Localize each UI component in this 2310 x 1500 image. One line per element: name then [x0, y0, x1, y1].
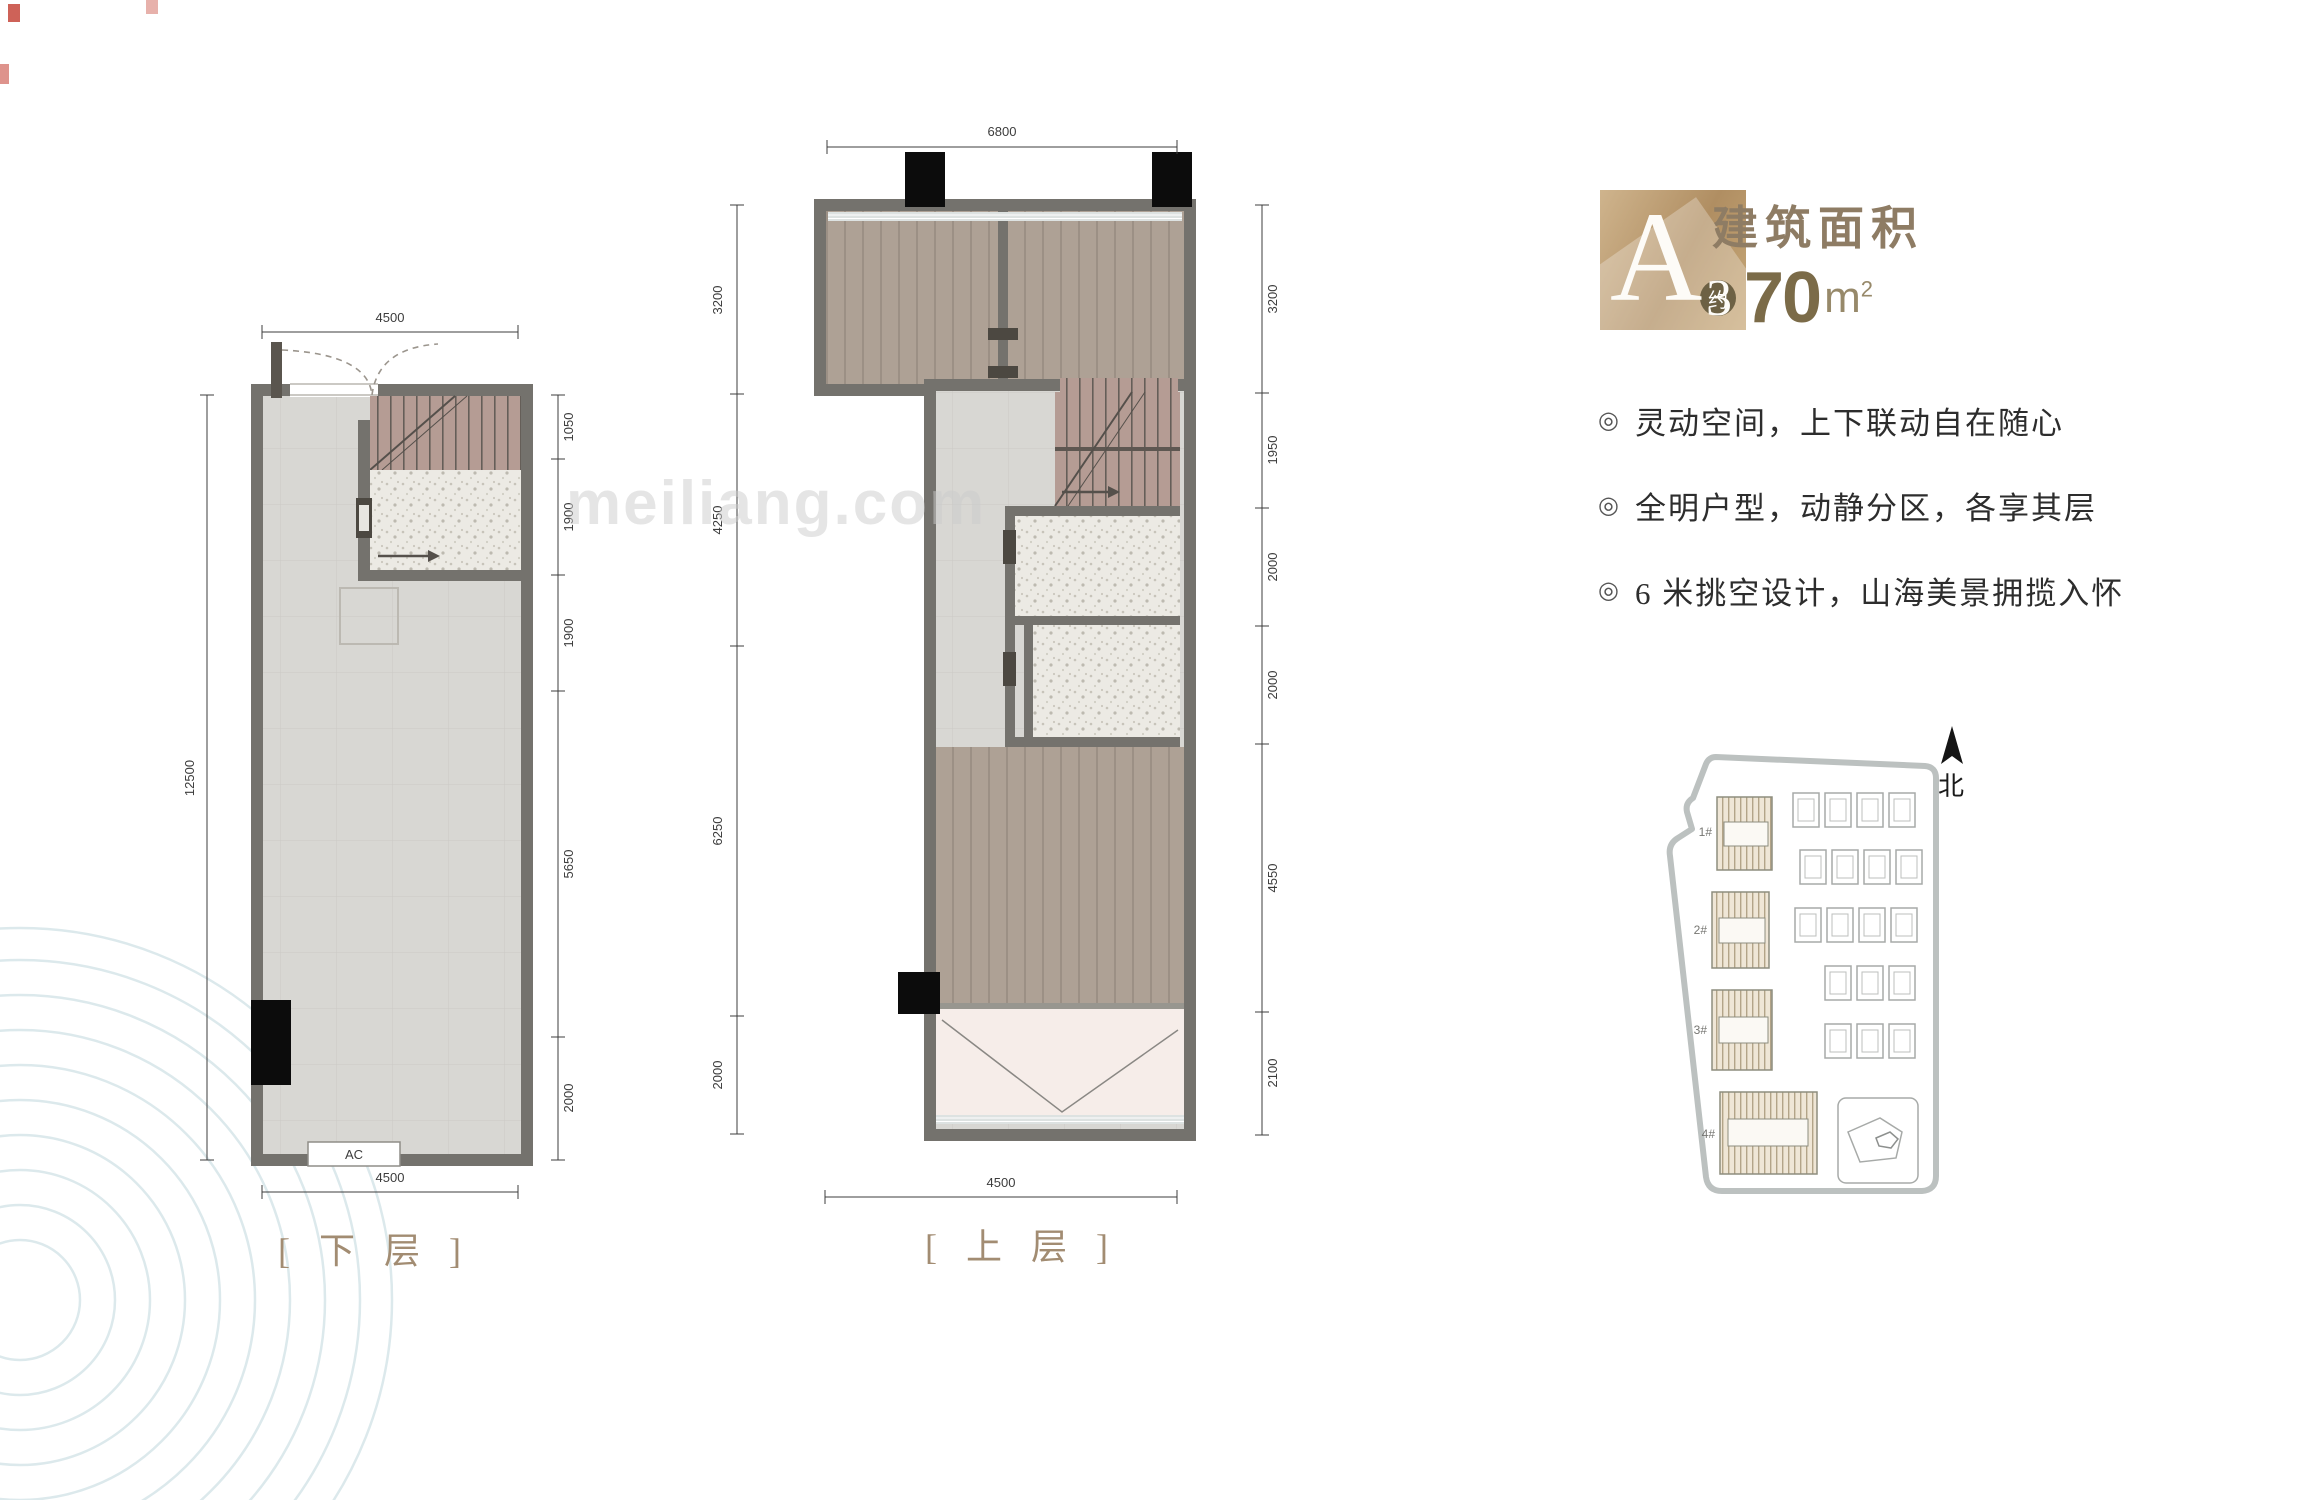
upper-plan-caption: [ 上 层 ] — [925, 1218, 1118, 1270]
svg-text:4550: 4550 — [1265, 864, 1280, 893]
bedroom-floor — [936, 747, 1184, 1003]
window-glazing — [828, 212, 1182, 221]
svg-text:3200: 3200 — [1265, 285, 1280, 314]
svg-text:1900: 1900 — [561, 619, 576, 648]
bullet-icon: ◎ — [1598, 576, 1621, 605]
column — [1152, 152, 1192, 207]
svg-text:5650: 5650 — [561, 850, 576, 879]
lower-floor-plan-drawing: AC — [251, 342, 527, 1166]
ac-label: AC — [345, 1147, 363, 1162]
north-label: 北 — [1938, 772, 1964, 801]
svg-text:6250: 6250 — [710, 817, 725, 846]
bullet-icon: ◎ — [1598, 491, 1621, 520]
column — [898, 972, 940, 1014]
lower-staircase — [370, 396, 521, 470]
area-unit: m2 — [1824, 273, 1873, 323]
svg-text:2000: 2000 — [1265, 553, 1280, 582]
area-value: 70 — [1744, 262, 1820, 334]
unit-number: 3 — [1706, 269, 1732, 328]
svg-text:4500: 4500 — [376, 310, 405, 325]
svg-text:1#: 1# — [1699, 825, 1713, 839]
svg-text:3200: 3200 — [710, 286, 725, 315]
terrace — [936, 1009, 1184, 1124]
svg-text:2100: 2100 — [1265, 1059, 1280, 1088]
svg-text:4#: 4# — [1702, 1127, 1716, 1141]
svg-text:2000: 2000 — [1265, 671, 1280, 700]
feature-item: ◎ 6 米挑空设计，山海美景拥揽入怀 — [1598, 568, 2124, 613]
site-map: 1# 2# 3# 4# 北 — [1670, 726, 1964, 1191]
bathrooms — [1003, 506, 1180, 747]
site-buildings — [1712, 797, 1817, 1174]
svg-text:4500: 4500 — [987, 1175, 1016, 1190]
interior-door — [988, 328, 1018, 340]
svg-text:1050: 1050 — [561, 413, 576, 442]
feature-item: ◎ 全明户型，动静分区，各享其层 — [1598, 483, 2124, 528]
feature-text: 6 米挑空设计，山海美景拥揽入怀 — [1635, 568, 2124, 613]
interior-wall — [358, 570, 521, 581]
unit-letter: A — [1610, 190, 1702, 330]
bullet-icon: ◎ — [1598, 406, 1621, 435]
floorplan-scene: AC 4500 4500 12500 1050 1900 1900 5650 2… — [0, 0, 2310, 1500]
site-amenity — [1838, 1098, 1918, 1183]
svg-text:2000: 2000 — [561, 1084, 576, 1113]
area-title: 建筑面积 — [1712, 192, 1924, 258]
watermark: meiliang.com — [566, 468, 986, 539]
upper-floor-plan-drawing — [820, 152, 1192, 1135]
upper-staircase — [1055, 392, 1180, 506]
svg-text:6800: 6800 — [988, 124, 1017, 139]
svg-text:12500: 12500 — [182, 760, 197, 796]
svg-text:2000: 2000 — [710, 1061, 725, 1090]
feature-list: ◎ 灵动空间，上下联动自在随心 ◎ 全明户型，动静分区，各享其层 ◎ 6 米挑空… — [1598, 398, 2124, 653]
interior-wall — [998, 211, 1008, 390]
feature-text: 灵动空间，上下联动自在随心 — [1635, 398, 2064, 443]
interior-door — [988, 366, 1018, 378]
svg-text:3#: 3# — [1694, 1023, 1708, 1037]
lower-plan-caption: [ 下 层 ] — [278, 1222, 471, 1274]
svg-text:1950: 1950 — [1265, 436, 1280, 465]
feature-item: ◎ 灵动空间，上下联动自在随心 — [1598, 398, 2124, 443]
north-arrow-icon: 北 — [1938, 726, 1964, 801]
svg-text:4500: 4500 — [376, 1170, 405, 1185]
site-unit-rows — [1793, 793, 1922, 1058]
svg-text:2#: 2# — [1694, 923, 1708, 937]
column — [905, 152, 945, 207]
feature-text: 全明户型，动静分区，各享其层 — [1635, 483, 2097, 528]
entry-door-post — [271, 342, 282, 398]
floorplan-page: AC 4500 4500 12500 1050 1900 1900 5650 2… — [0, 0, 2310, 1500]
red-artifact-marks — [0, 0, 158, 84]
column — [251, 1000, 291, 1085]
